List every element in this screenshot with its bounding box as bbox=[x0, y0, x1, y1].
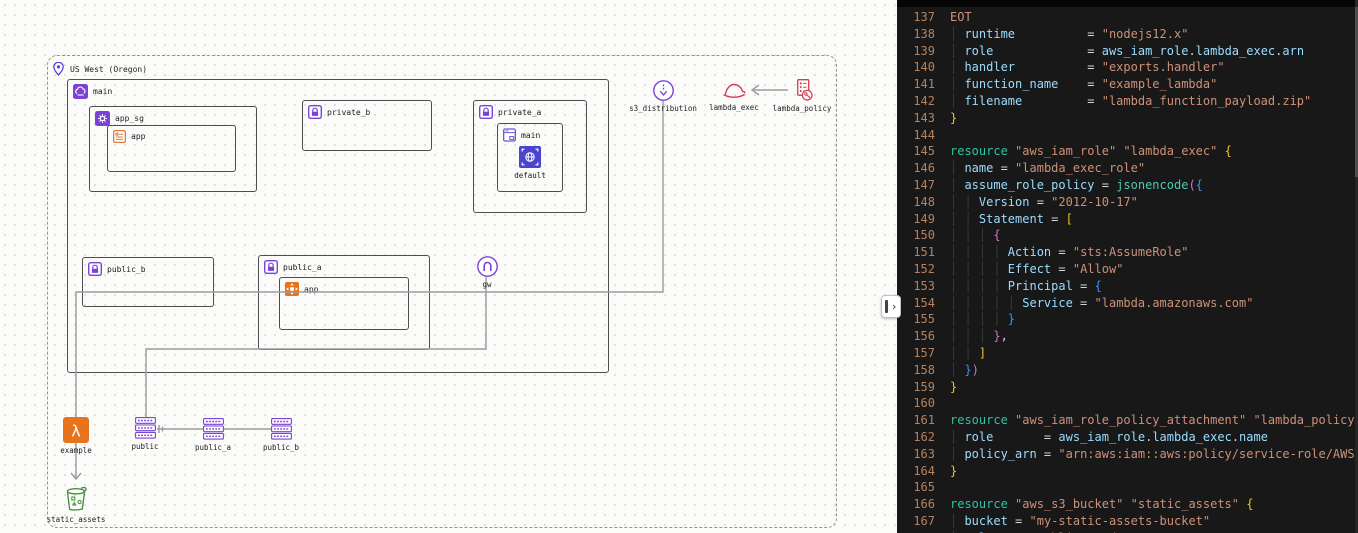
route-table-public-a-node[interactable]: public_a bbox=[192, 418, 234, 452]
route-table-public-b-name: public_b bbox=[263, 443, 299, 452]
code-line: 164} bbox=[897, 463, 1358, 480]
route-table-icon bbox=[271, 418, 292, 440]
code-line: 147│ assume_role_policy = jsonencode({ bbox=[897, 177, 1358, 194]
code-line: 143} bbox=[897, 110, 1358, 127]
code-line: 155│ │ │ │ } bbox=[897, 311, 1358, 328]
lambda-exec-node[interactable]: lambda_exec bbox=[706, 81, 762, 112]
lambda-exec-name: lambda_exec bbox=[709, 103, 759, 112]
route-table-public-node[interactable]: public bbox=[124, 417, 166, 451]
code-line: 160 bbox=[897, 395, 1358, 412]
route-table-public-b-node[interactable]: public_b bbox=[260, 418, 302, 452]
code-editor-panel[interactable]: 137EOT138│ runtime = "nodejs12.x"139│ ro… bbox=[897, 0, 1358, 533]
lambda-example-node[interactable]: λ example bbox=[55, 417, 97, 455]
code-line: 163│ policy_arn = "arn:aws:iam::aws:poli… bbox=[897, 446, 1358, 463]
code-line: 162│ role = aws_iam_role.lambda_exec.nam… bbox=[897, 429, 1358, 446]
vpc-endpoint-default-name: default bbox=[514, 171, 546, 180]
terraform-diagram-canvas[interactable]: US West (Oregon) main bbox=[0, 0, 897, 533]
internet-gateway-icon bbox=[477, 256, 498, 277]
s3-bucket-icon bbox=[64, 485, 88, 512]
code-line: 148│ │ Version = "2012-10-17" bbox=[897, 194, 1358, 211]
code-line: 161resource "aws_iam_role_policy_attachm… bbox=[897, 412, 1358, 429]
code-line: 167│ bucket = "my-static-assets-bucket" bbox=[897, 513, 1358, 530]
lambda-icon: λ bbox=[63, 417, 89, 443]
code-line: 157│ │ ] bbox=[897, 345, 1358, 362]
code-line: 166resource "aws_s3_bucket" "static_asse… bbox=[897, 496, 1358, 513]
code-line: 142│ filename = "lambda_function_payload… bbox=[897, 93, 1358, 110]
editor-top-strip bbox=[897, 0, 1358, 7]
s3-bucket-static-assets-node[interactable]: static_assets bbox=[50, 485, 102, 524]
code-line: 165 bbox=[897, 479, 1358, 496]
route-table-public-a-name: public_a bbox=[195, 443, 231, 452]
diagram-edges bbox=[0, 0, 897, 533]
vpc-endpoint-icon bbox=[519, 146, 541, 168]
code-line: 145resource "aws_iam_role" "lambda_exec"… bbox=[897, 143, 1358, 160]
lambda-policy-name: lambda_policy bbox=[773, 104, 832, 113]
code-line: 152│ │ │ │ Effect = "Allow" bbox=[897, 261, 1358, 278]
internet-gateway-node[interactable]: gw bbox=[466, 256, 508, 289]
edge-s3distribution-to-example bbox=[76, 101, 663, 417]
code-line: 144 bbox=[897, 127, 1358, 144]
edge-gw-to-public bbox=[146, 277, 486, 417]
svg-text:λ: λ bbox=[71, 422, 80, 441]
app-window: US West (Oregon) main bbox=[0, 0, 1358, 533]
code-line: 151│ │ │ │ Action = "sts:AssumeRole" bbox=[897, 244, 1358, 261]
iam-role-icon bbox=[721, 81, 747, 100]
cloudfront-distribution-icon bbox=[653, 80, 674, 101]
s3-distribution-name: s3_distribution bbox=[629, 104, 697, 113]
route-table-icon bbox=[203, 418, 224, 440]
code-line: 139│ role = aws_iam_role.lambda_exec.arn bbox=[897, 43, 1358, 60]
code-line: 150│ │ │ { bbox=[897, 227, 1358, 244]
code-line: 146│ name = "lambda_exec_role" bbox=[897, 160, 1358, 177]
code-line: 138│ runtime = "nodejs12.x" bbox=[897, 26, 1358, 43]
lambda-policy-node[interactable]: lambda_policy bbox=[774, 79, 830, 113]
code-line: 137EOT bbox=[897, 9, 1358, 26]
route-table-public-name: public bbox=[131, 442, 158, 451]
code-line: 141│ function_name = "example_lambda" bbox=[897, 76, 1358, 93]
code-line: 159} bbox=[897, 379, 1358, 396]
code-line: 153│ │ │ │ Principal = { bbox=[897, 278, 1358, 295]
internet-gateway-name: gw bbox=[482, 280, 491, 289]
s3-bucket-static-assets-name: static_assets bbox=[47, 515, 106, 524]
s3-distribution-node[interactable]: s3_distribution bbox=[631, 80, 695, 113]
chevron-right-icon: › bbox=[888, 296, 900, 317]
code-line: 149│ │ Statement = [ bbox=[897, 211, 1358, 228]
route-table-icon bbox=[135, 417, 156, 439]
collapse-panel-button[interactable]: › bbox=[881, 295, 901, 318]
code-line: 154│ │ │ │ │ Service = "lambda.amazonaws… bbox=[897, 295, 1358, 312]
code-line: 158│ }) bbox=[897, 362, 1358, 379]
vpc-endpoint-default-node[interactable]: default bbox=[507, 146, 553, 180]
terraform-code-lines[interactable]: 137EOT138│ runtime = "nodejs12.x"139│ ro… bbox=[897, 7, 1358, 533]
code-line: 140│ handler = "exports.handler" bbox=[897, 59, 1358, 76]
code-line: 156│ │ │ }, bbox=[897, 328, 1358, 345]
iam-policy-icon bbox=[790, 79, 814, 101]
lambda-example-name: example bbox=[60, 446, 92, 455]
